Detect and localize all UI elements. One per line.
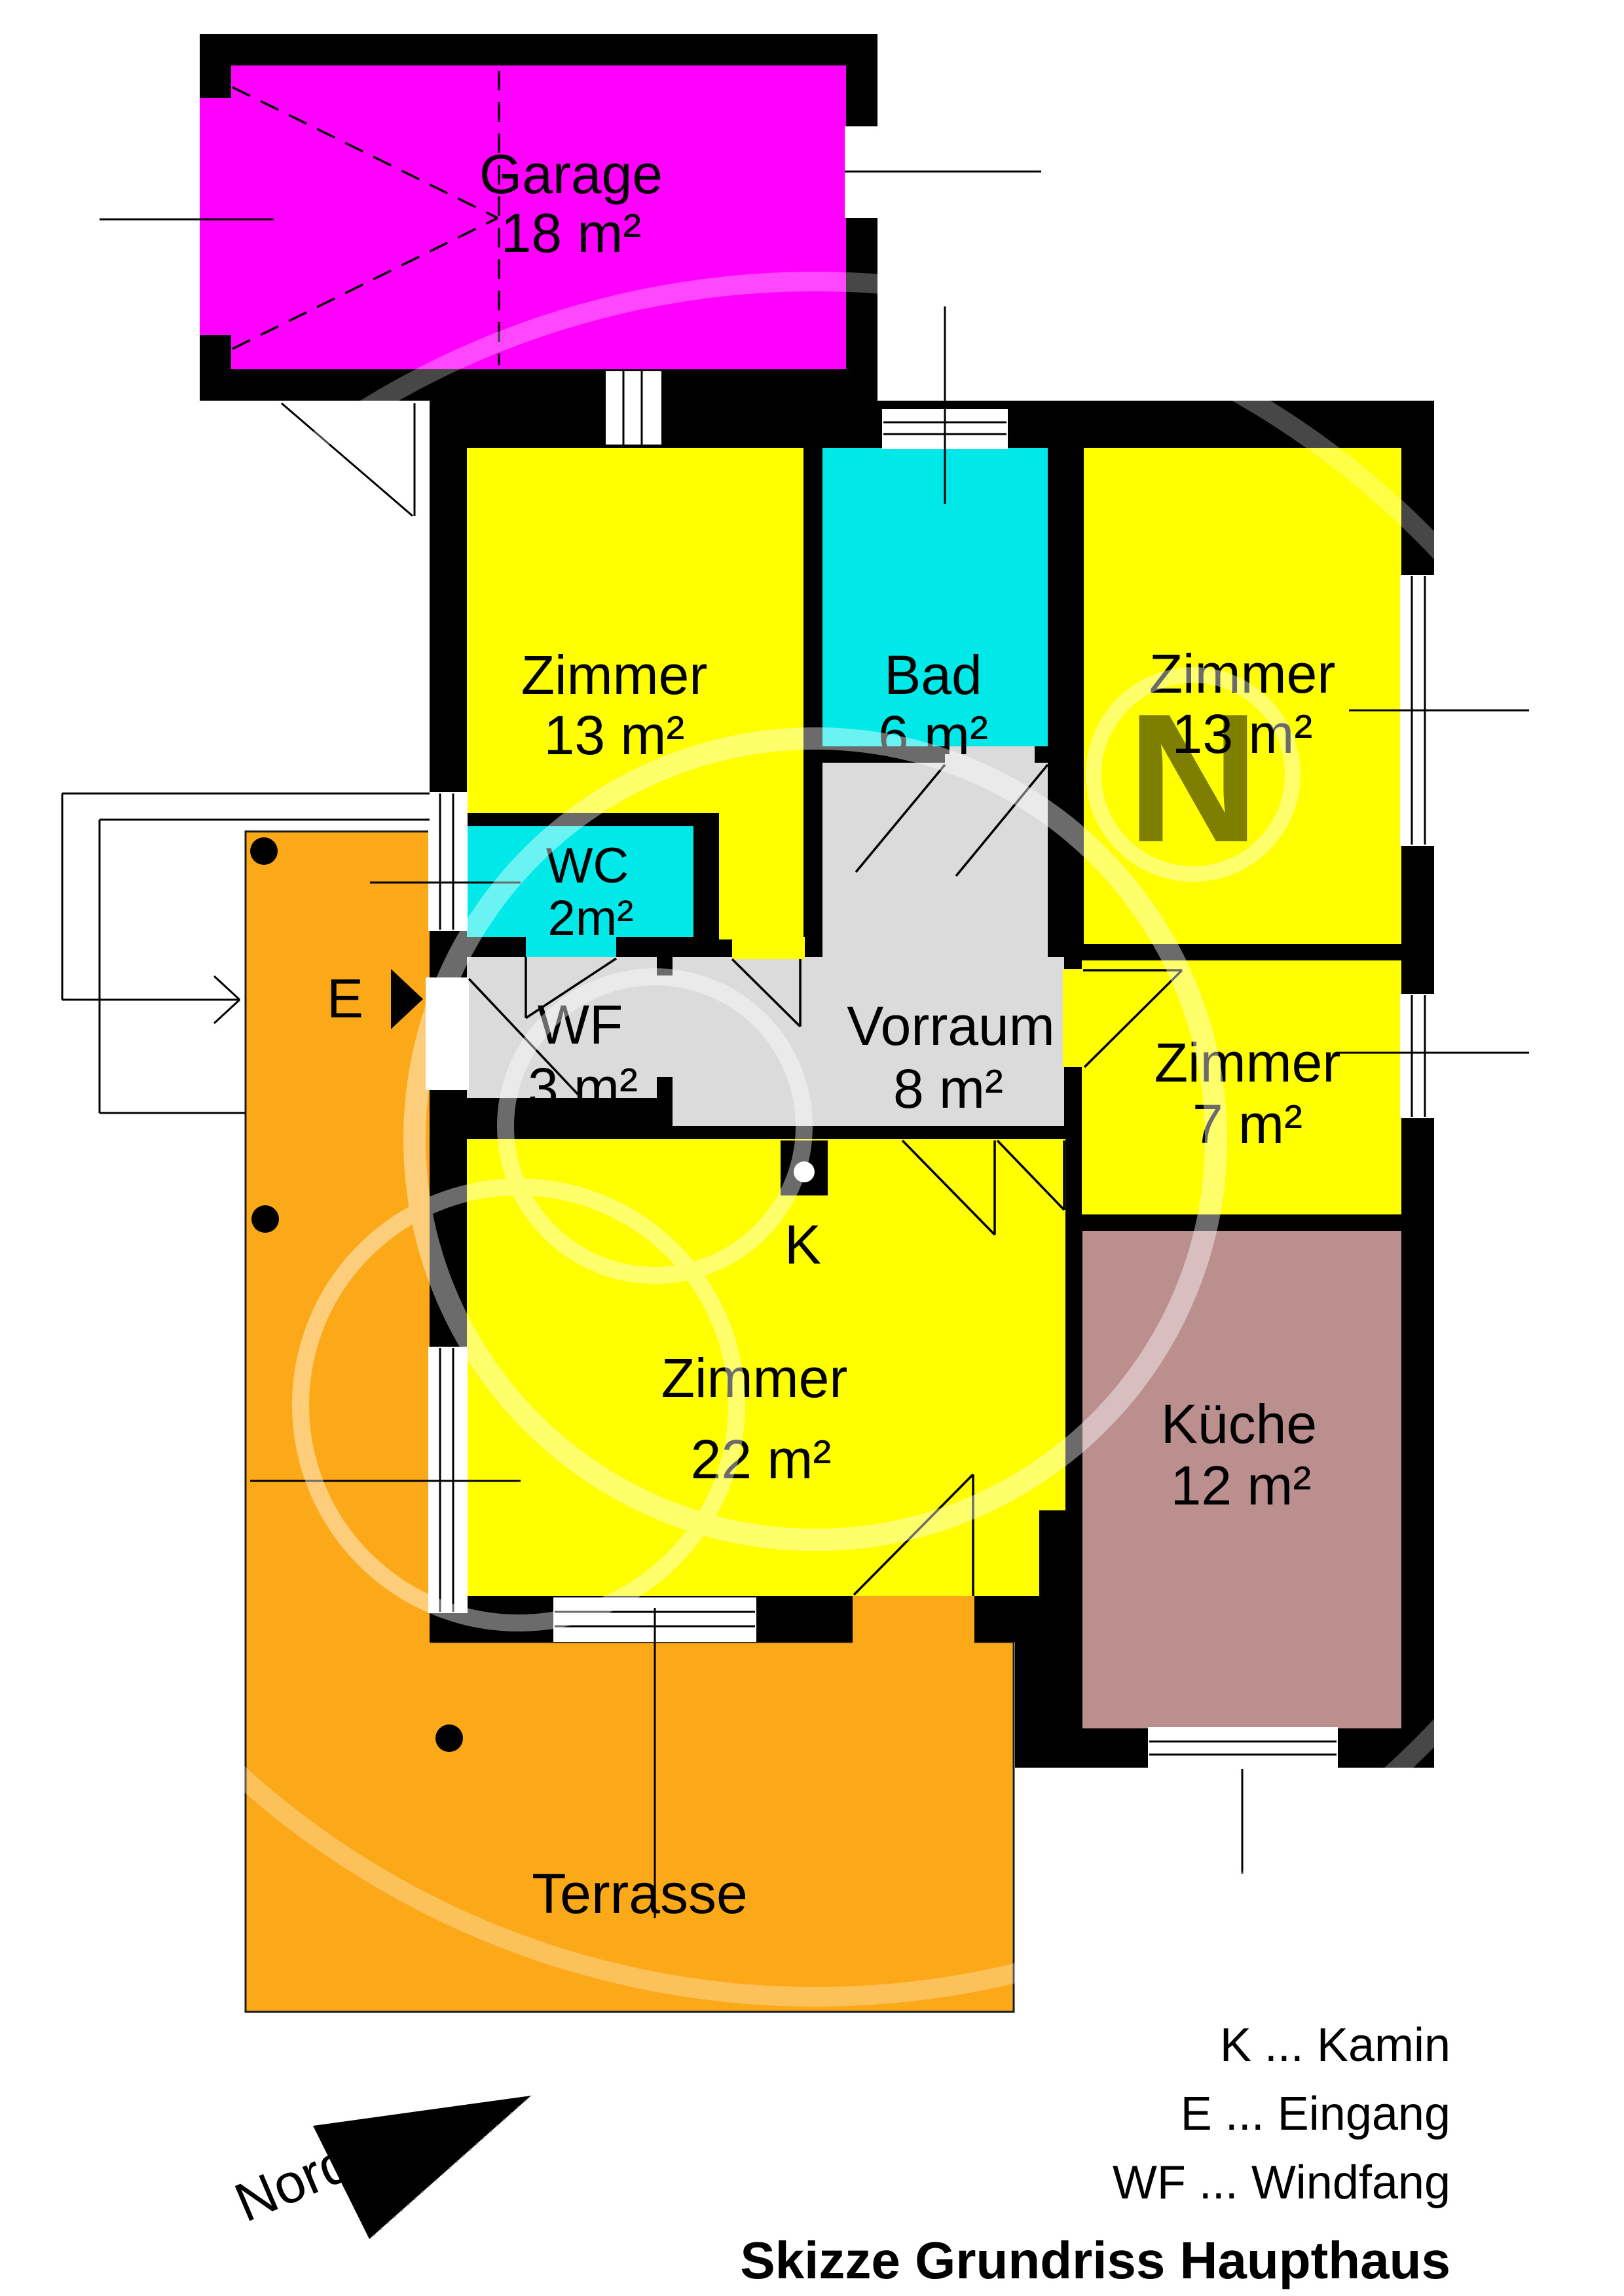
kamin-marker: K [784,1214,821,1275]
wc-area: 2m² [548,890,634,946]
zimmer-e-door-opening [1063,969,1083,1067]
window-kueche [1148,1727,1338,1769]
wf-area: 3 m² [528,1057,638,1118]
vorraum-label: Vorraum [847,995,1054,1057]
page-title: Skizze Grundriss Haupthaus [740,2231,1450,2289]
garage-door-opening [200,98,232,335]
kueche-label: Küche [1161,1393,1317,1455]
zimmer-nw-door-opening [732,937,805,959]
vorraum-area: 8 m² [893,1058,1003,1120]
kueche-area: 12 m² [1171,1455,1312,1516]
garage-house-passage [606,371,661,445]
eingang-marker: E [327,968,363,1029]
garage-label: Garage [479,143,663,205]
terrace-column-dot [250,837,278,865]
terrasse-label: Terrasse [532,1863,748,1925]
legend-item-kamin: K ... Kamin [1220,2019,1450,2071]
bad-label: Bad [884,644,982,706]
window-zimmer-nw [428,792,468,931]
wf-vorraum-opening [655,975,674,1077]
terrace-column-dot [435,1724,463,1752]
zimmer-sw-label: Zimmer [661,1347,848,1409]
watermark-letter: N [1127,676,1259,881]
zimmer-nw-label: Zimmer [521,644,708,706]
floorplan-canvas: Garage 18 m² Zimmer 13 m² Bad 6 m² Zimme… [0,0,1624,2296]
zimmer-sw-area: 22 m² [691,1429,832,1490]
terrace-column-dot [251,1205,279,1233]
legend-item-eingang: E ... Eingang [1181,2088,1450,2140]
garage-area: 18 m² [501,202,642,264]
wc-label: WC [546,838,629,894]
terrace-door-opening [853,1596,974,1643]
window-zimmer-e [1400,994,1435,1118]
legend-item-windfang: WF ... Windfang [1113,2157,1450,2209]
zimmer-e-label: Zimmer [1154,1032,1341,1093]
